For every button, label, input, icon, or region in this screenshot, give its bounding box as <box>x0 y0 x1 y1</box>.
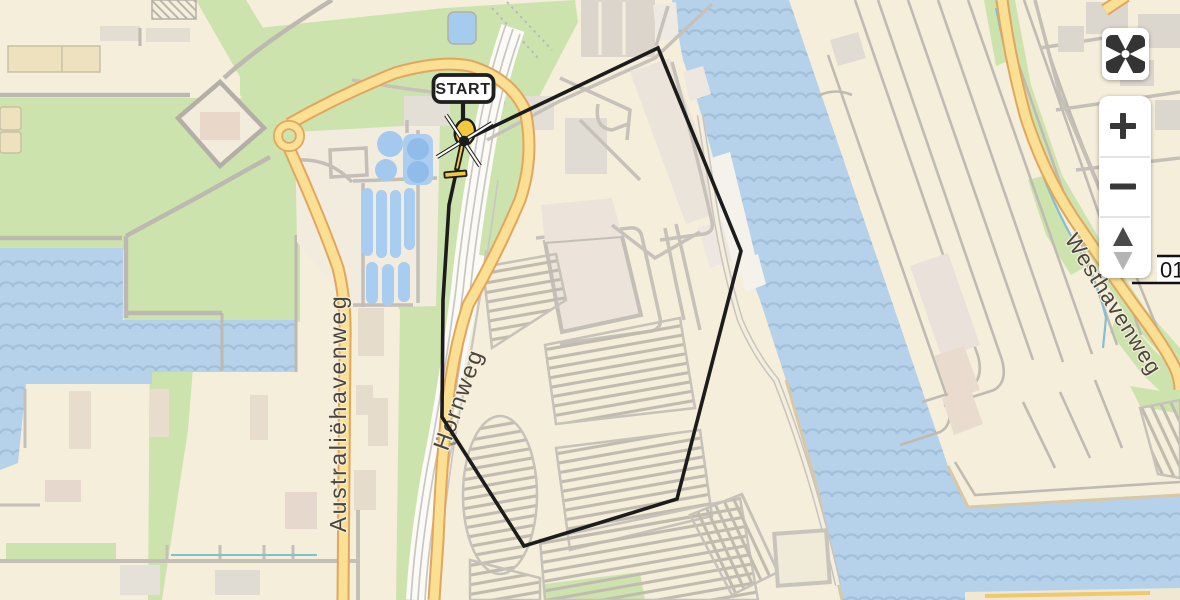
svg-text:01: 01 <box>1160 258 1180 283</box>
svg-text:Australiëhavenweg: Australiëhavenweg <box>325 294 351 533</box>
svg-text:START: START <box>435 81 490 98</box>
